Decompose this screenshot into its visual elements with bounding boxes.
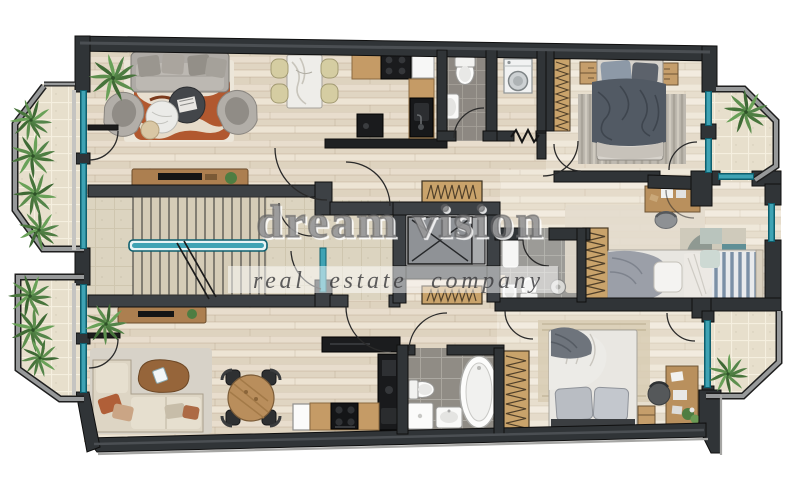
- svg-text:dream vision: dream vision: [256, 196, 544, 248]
- svg-text:real estate company: real estate company: [253, 268, 545, 294]
